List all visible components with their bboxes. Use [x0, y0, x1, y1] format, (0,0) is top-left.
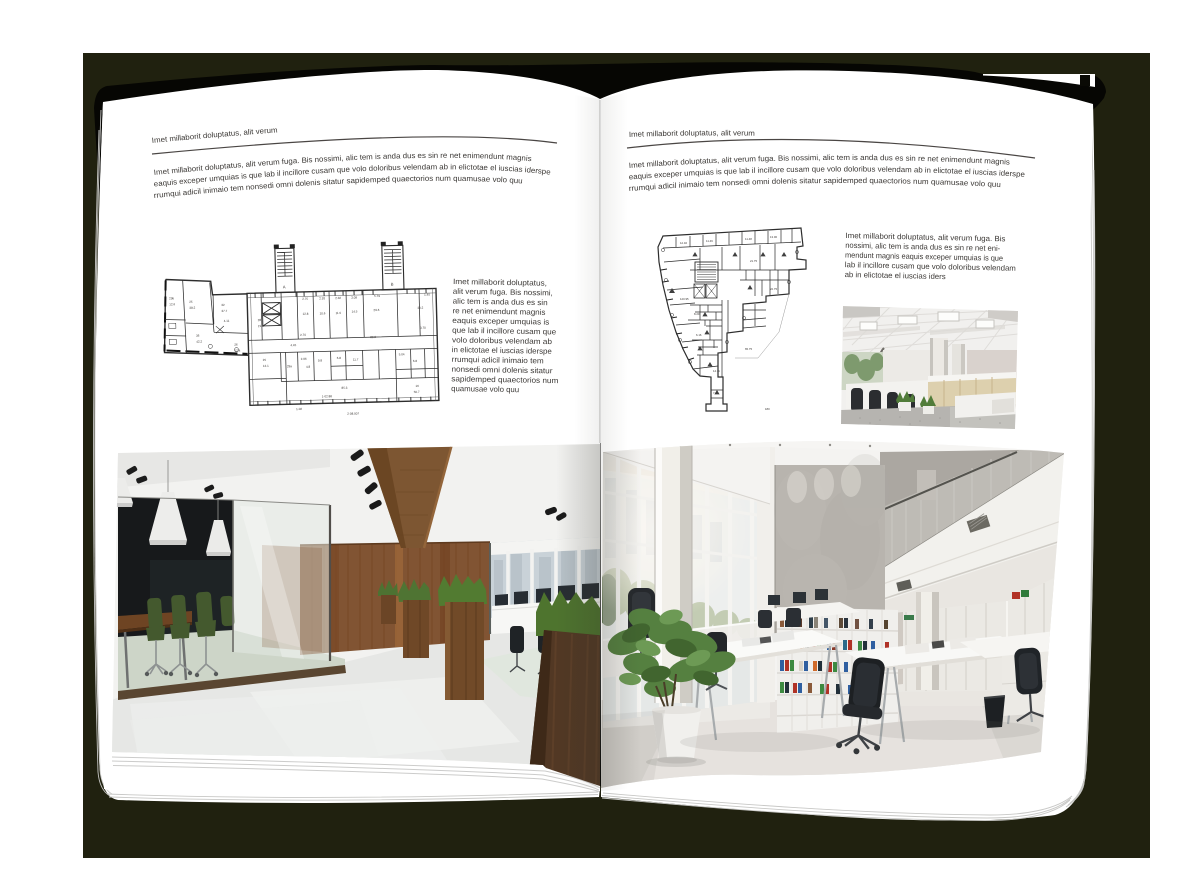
- svg-text:5.79: 5.79: [374, 294, 380, 298]
- svg-text:21.75: 21.75: [750, 259, 757, 263]
- svg-text:3.70: 3.70: [420, 326, 426, 330]
- svg-text:3.09: 3.09: [351, 295, 357, 299]
- svg-text:A: A: [283, 284, 286, 289]
- svg-text:21.6: 21.6: [258, 324, 264, 328]
- svg-text:25: 25: [189, 300, 193, 304]
- svg-text:2.32: 2.32: [335, 296, 341, 300]
- svg-text:2.75: 2.75: [302, 297, 308, 301]
- svg-text:120.95: 120.95: [680, 297, 689, 301]
- svg-text:38.2: 38.2: [189, 306, 195, 310]
- svg-text:29a: 29a: [287, 364, 292, 368]
- svg-text:11.48: 11.48: [745, 237, 752, 241]
- svg-text:25: 25: [263, 358, 267, 362]
- svg-text:14.11: 14.11: [713, 369, 720, 373]
- svg-text:9.8: 9.8: [318, 358, 323, 362]
- svg-text:180: 180: [765, 407, 770, 411]
- svg-text:8.20: 8.20: [694, 312, 700, 316]
- svg-text:65.75: 65.75: [745, 347, 752, 351]
- svg-text:28: 28: [258, 318, 262, 322]
- svg-text:quamusae volo quu: quamusae volo quu: [451, 384, 519, 394]
- svg-text:11.46: 11.46: [706, 239, 713, 243]
- svg-text:6.16: 6.16: [696, 333, 702, 337]
- svg-text:4.11: 4.11: [224, 319, 230, 323]
- svg-text:12.40: 12.40: [680, 241, 687, 245]
- svg-text:50.7: 50.7: [414, 390, 420, 394]
- svg-text:16: 16: [415, 384, 419, 388]
- svg-text:80.9: 80.9: [370, 335, 376, 339]
- svg-text:32: 32: [221, 303, 225, 307]
- svg-text:4.45: 4.45: [290, 343, 296, 347]
- svg-text:2.93: 2.93: [319, 296, 325, 300]
- svg-text:2.96: 2.96: [301, 357, 307, 361]
- svg-text:5.04: 5.04: [399, 352, 405, 356]
- svg-text:12.8: 12.8: [303, 312, 309, 316]
- svg-text:6.8: 6.8: [413, 359, 418, 363]
- svg-text:13.00: 13.00: [770, 235, 777, 239]
- svg-text:B: B: [391, 282, 394, 287]
- svg-text:42.2: 42.2: [196, 340, 202, 344]
- svg-text:2.70: 2.70: [300, 333, 306, 337]
- svg-text:1-02: 1-02: [296, 407, 302, 411]
- svg-text:6.8: 6.8: [337, 356, 342, 360]
- svg-text:11.7: 11.7: [353, 357, 359, 361]
- svg-text:37.7: 37.7: [221, 309, 227, 313]
- svg-text:7.5: 7.5: [713, 391, 717, 395]
- svg-text:36: 36: [196, 334, 200, 338]
- svg-text:4.8: 4.8: [306, 365, 311, 369]
- svg-text:29b: 29b: [169, 296, 174, 300]
- svg-text:29.6: 29.6: [373, 308, 379, 312]
- svg-text:12.4: 12.4: [234, 349, 240, 353]
- svg-text:2-08.007: 2-08.007: [347, 411, 359, 415]
- svg-text:1.45: 1.45: [424, 293, 430, 297]
- svg-text:22.75: 22.75: [770, 287, 777, 291]
- svg-text:85.3: 85.3: [341, 386, 347, 390]
- svg-text:26: 26: [234, 343, 238, 347]
- svg-text:30.2: 30.2: [417, 306, 423, 310]
- svg-text:14.5: 14.5: [351, 309, 357, 313]
- svg-text:Imet millaborit doluptatus, al: Imet millaborit doluptatus, alit verum: [629, 128, 755, 139]
- svg-text:10.6: 10.6: [320, 311, 326, 315]
- svg-text:11.5: 11.5: [336, 311, 342, 315]
- svg-text:12.1: 12.1: [263, 364, 269, 368]
- svg-text:12.6: 12.6: [169, 302, 175, 306]
- svg-text:1-02.88: 1-02.88: [322, 394, 333, 398]
- svg-text:rrumqui adicil inimaio tem: rrumqui adicil inimaio tem: [452, 355, 544, 366]
